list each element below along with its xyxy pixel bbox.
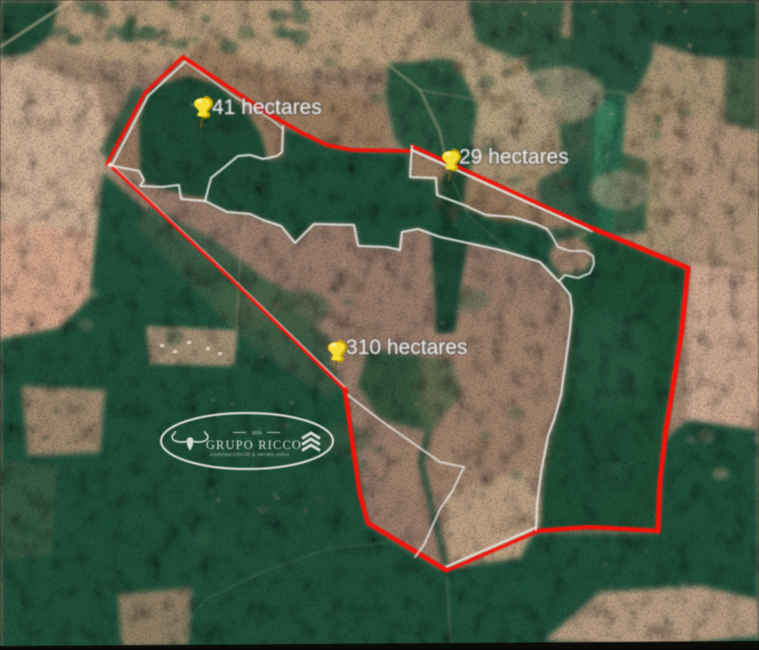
svg-text:29 hectares: 29 hectares [459,146,569,169]
svg-text:310 hectares: 310 hectares [346,336,467,359]
svg-text:GRUPO RICCO: GRUPO RICCO [206,438,302,452]
svg-text:41 hectares: 41 hectares [212,96,322,119]
svg-text:2016: 2016 [252,432,263,437]
svg-text:AGRONEGÓCIO & IMOBILIÁRIA: AGRONEGÓCIO & IMOBILIÁRIA [210,451,290,457]
